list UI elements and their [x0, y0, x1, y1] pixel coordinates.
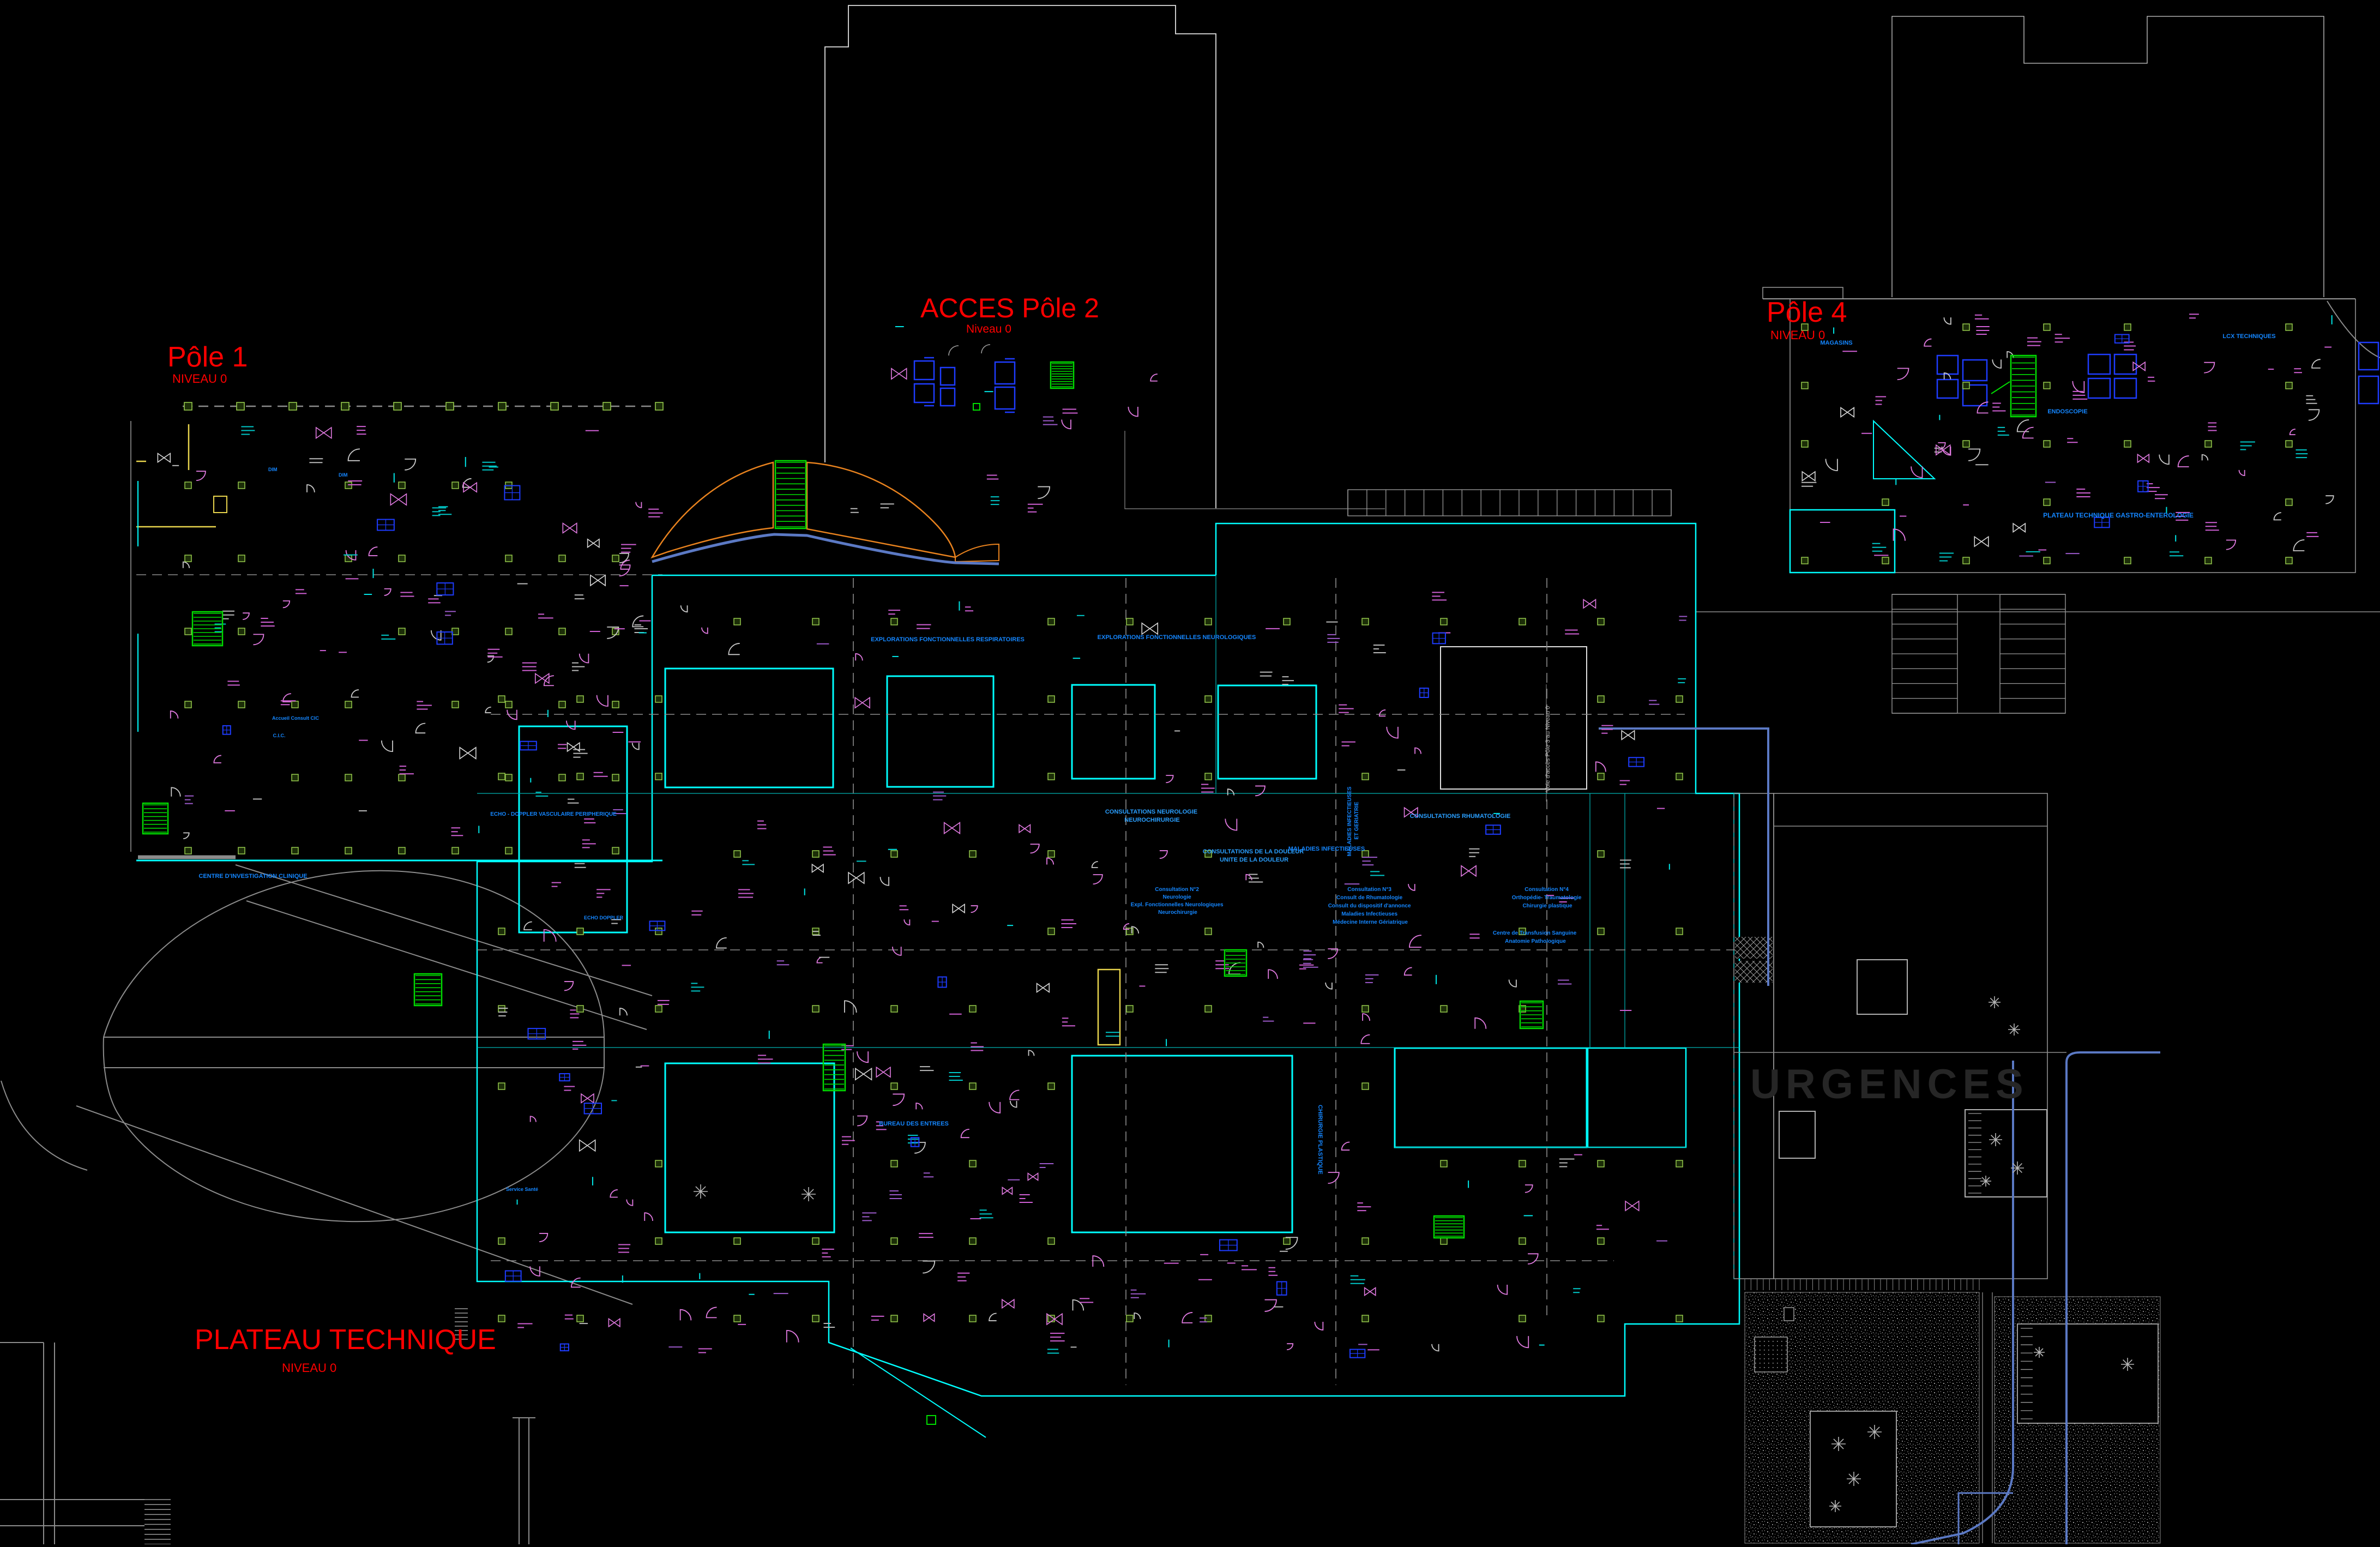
- double-door-symbol: [812, 864, 823, 872]
- annotation-mark: [1976, 327, 1989, 334]
- column-marker: [238, 628, 245, 635]
- door-arc: [1128, 407, 1137, 416]
- column-marker: [446, 402, 454, 410]
- column-marker: [2286, 324, 2292, 330]
- double-door-symbol: [1002, 1188, 1012, 1195]
- door-arc: [620, 1008, 627, 1015]
- column-marker: [1048, 618, 1055, 625]
- door-arc: [1968, 449, 1980, 461]
- column-marker: [655, 696, 662, 702]
- cad-drawing: Pôle 1 NIVEAU 0 ACCES Pôle 2 Niveau 0 Pô…: [0, 0, 2380, 1544]
- annotation-mark: [1215, 961, 1229, 968]
- annotation-mark: [924, 1173, 933, 1177]
- label-magasins: MAGASINS: [1820, 340, 1852, 346]
- annotation-mark: [919, 1233, 933, 1237]
- garden-divider-path: [1983, 1292, 1992, 1543]
- waiting-area-furniture: [914, 358, 1015, 412]
- column-marker: [1882, 499, 1889, 505]
- patio-1: [1965, 1110, 2047, 1197]
- door-arc: [855, 654, 863, 661]
- door-arc: [1264, 1300, 1276, 1311]
- door-arc: [2309, 410, 2319, 420]
- annotation-mark: [691, 911, 702, 915]
- door-arc: [1361, 1035, 1370, 1044]
- crosshatch-room-1: [1735, 937, 1773, 959]
- garden-comb: [1745, 1279, 1979, 1290]
- annotation-mark: [565, 1315, 574, 1319]
- annotation-mark: [658, 1001, 670, 1004]
- column-marker: [734, 851, 740, 857]
- door-arc: [1475, 1018, 1486, 1029]
- annotation-mark: [920, 1067, 933, 1070]
- column-marker: [2286, 557, 2292, 564]
- furniture-block-detail: [437, 583, 453, 595]
- door-arc: [971, 906, 978, 912]
- label-consultation4: Consultation N°4 Orthopédie- Traumatolog…: [1512, 887, 1583, 909]
- annotation-mark: [1370, 871, 1384, 875]
- annotation-mark: [1975, 315, 1989, 319]
- door-arc: [989, 1102, 1000, 1113]
- gardens: [1745, 1292, 2160, 1544]
- column-marker: [1963, 557, 1969, 564]
- roof-joints: [1734, 826, 2066, 1052]
- door-arc: [1246, 875, 1251, 880]
- column-marker: [498, 1006, 505, 1012]
- column-marker: [452, 701, 459, 708]
- double-door-symbol: [581, 1094, 594, 1103]
- column-marker: [577, 1315, 583, 1322]
- double-door-symbol: [1974, 537, 1989, 546]
- annotation-mark: [445, 611, 456, 615]
- annotation-mark: [1679, 617, 1687, 621]
- column-marker: [969, 1160, 976, 1167]
- label-consultation3: Consultation N°3 Consult de Rhumatologie…: [1328, 887, 1413, 925]
- annotation-mark: [517, 1324, 532, 1328]
- plateau-technique-subtitle: NIVEAU 0: [282, 1361, 336, 1375]
- column-marker: [185, 847, 191, 854]
- column-marker: [655, 402, 663, 410]
- garden-patio-2: [2017, 1324, 2158, 1423]
- column-marker: [559, 701, 565, 708]
- column-marker: [399, 847, 405, 854]
- column-marker: [1963, 382, 1969, 389]
- door-arc: [1150, 374, 1158, 381]
- annotation-mark: [1040, 1164, 1054, 1167]
- column-marker: [238, 482, 245, 489]
- annotation-mark: [296, 589, 306, 593]
- pole1-courtyard: [519, 726, 627, 932]
- annotation-mark: [980, 1210, 993, 1218]
- annotation-mark: [1620, 781, 1630, 785]
- stair-pole1-b: [143, 803, 168, 834]
- door-arc: [2239, 470, 2245, 475]
- door-arc: [567, 721, 575, 730]
- column-marker: [559, 628, 565, 635]
- ramp-west-berm: [652, 462, 773, 557]
- pole4-body: [1763, 287, 2355, 573]
- stair-leader: [1991, 382, 2010, 394]
- column-marker: [345, 847, 352, 854]
- furniture-block-detail: [1277, 1281, 1287, 1295]
- annotation-mark: [482, 462, 497, 470]
- annotation-mark: [222, 611, 234, 619]
- double-door-symbol: [1583, 599, 1595, 608]
- corridor-centerlines: [477, 578, 1739, 1385]
- door-arc: [2274, 513, 2281, 520]
- double-door-symbol: [608, 1319, 620, 1326]
- column-marker: [185, 628, 191, 635]
- annotation-mark: [757, 821, 767, 829]
- escalator-pole2-rungs: [1052, 364, 1072, 387]
- annotation-mark: [1263, 1018, 1274, 1021]
- column-marker: [1598, 696, 1604, 702]
- column-marker: [1205, 1006, 1212, 1012]
- annotation-mark: [2072, 392, 2087, 399]
- door-arc: [564, 982, 573, 990]
- door-arc: [1409, 935, 1421, 947]
- parking-band-north: [1348, 490, 1671, 516]
- door-arc: [893, 947, 901, 955]
- door-arc: [2325, 496, 2333, 503]
- skylight-2: [1779, 1111, 1815, 1158]
- column-marker: [891, 1160, 897, 1167]
- door-arc: [857, 1051, 868, 1062]
- door-arc: [1528, 1254, 1538, 1264]
- plant-symbol: [1831, 1437, 1846, 1451]
- annotation-mark: [965, 607, 973, 611]
- column-marker: [1598, 1160, 1604, 1167]
- door-arc: [171, 711, 178, 719]
- road-through-pond: [104, 1037, 604, 1068]
- column-marker: [1598, 773, 1604, 780]
- annotation-mark: [2027, 338, 2041, 346]
- door-arc: [1062, 420, 1071, 429]
- plant-symbol: [2008, 1024, 2020, 1036]
- annotation-mark: [822, 1249, 834, 1257]
- double-door-symbol: [1802, 472, 1815, 481]
- column-marker: [734, 1238, 740, 1244]
- column-marker: [969, 1006, 976, 1012]
- door-arc: [1498, 1285, 1508, 1295]
- label-service-sante: Service Santé: [506, 1187, 538, 1192]
- door-arc: [1325, 983, 1332, 989]
- annotation-mark: [1242, 1266, 1257, 1269]
- urgences-roof: [1774, 793, 2047, 1279]
- column-marker: [238, 555, 245, 562]
- double-door-symbol: [924, 1314, 935, 1322]
- label-bureau-entrees: BUREAU DES ENTREES: [879, 1121, 949, 1127]
- column-marker: [498, 928, 505, 935]
- annotation-mark: [575, 595, 585, 599]
- door-arc: [893, 1094, 904, 1105]
- column-marker: [1963, 441, 1969, 447]
- annotation-mark: [568, 799, 579, 803]
- annotation-mark: [1801, 483, 1816, 486]
- plant-symbol: [1989, 996, 2001, 1008]
- annotation-mark: [584, 819, 595, 823]
- column-marker: [1048, 928, 1055, 935]
- column-marker: [1048, 1238, 1055, 1244]
- column-marker: [505, 628, 512, 635]
- column-marker: [577, 1006, 583, 1012]
- door-arc: [2072, 381, 2084, 393]
- column-marker: [577, 928, 583, 935]
- door-arc: [1092, 862, 1098, 868]
- column-marker: [1598, 1238, 1604, 1244]
- label-cic-short: C.I.C.: [273, 733, 285, 738]
- door-arc: [1225, 819, 1237, 830]
- column-marker: [812, 1238, 819, 1244]
- column-marker: [1126, 618, 1133, 625]
- door-arc: [183, 833, 189, 839]
- annotation-mark: [2155, 495, 2168, 498]
- annotation-mark: [1469, 849, 1479, 857]
- plant-symbol: [2034, 1347, 2045, 1358]
- furniture-block-detail: [585, 1103, 601, 1113]
- column-marker: [1676, 773, 1683, 780]
- courtyard-5: [665, 1063, 834, 1232]
- annotation-mark: [691, 983, 704, 991]
- door-arc: [681, 605, 688, 612]
- door-arc: [787, 1331, 799, 1343]
- column-marker: [655, 928, 662, 935]
- door-arc: [405, 459, 415, 470]
- column-marker: [891, 1083, 897, 1089]
- door-arc: [610, 1190, 618, 1197]
- column-marker: [2124, 441, 2131, 447]
- annotation-mark: [1201, 785, 1215, 792]
- label-dim-2: DIM: [339, 472, 348, 478]
- column-marker: [2044, 441, 2050, 447]
- annotation-mark: [1249, 875, 1263, 882]
- column-marker: [498, 1083, 505, 1089]
- annotation-mark: [1649, 701, 1659, 705]
- pole4-subtitle: NIVEAU 0: [1770, 328, 1825, 342]
- furniture-block-detail: [1629, 757, 1644, 766]
- annotation-mark: [777, 961, 790, 965]
- annotation-mark: [1131, 1290, 1146, 1298]
- stair-pole1-b-rungs: [144, 805, 167, 832]
- door-arc: [544, 930, 556, 942]
- annotation-mark: [1558, 980, 1571, 984]
- door-arc: [644, 1213, 653, 1221]
- south-appendage: [851, 1348, 986, 1437]
- column-marker: [603, 402, 611, 410]
- door-arc: [1992, 359, 2001, 368]
- annotation-mark: [2076, 489, 2090, 497]
- annotation-mark: [2240, 442, 2255, 450]
- urgences-roof-title: URGENCES: [1750, 1061, 2029, 1107]
- annotation-mark: [851, 509, 859, 513]
- stair-main-c-rungs: [1226, 952, 1245, 974]
- column-marker: [238, 701, 245, 708]
- door-arc: [531, 1116, 536, 1122]
- door-arc: [1010, 1090, 1019, 1099]
- column-marker: [891, 618, 897, 625]
- column-marker: [184, 402, 192, 410]
- annotation-mark: [758, 1055, 773, 1063]
- column-marker: [1801, 382, 1808, 389]
- door-arc: [1924, 339, 1931, 346]
- column-marker: [292, 774, 298, 781]
- annotation-mark: [522, 663, 537, 671]
- annotation-mark: [987, 475, 998, 479]
- stair-pole4-rungs: [2012, 357, 2035, 415]
- column-marker: [1205, 928, 1212, 935]
- door-arc: [1408, 884, 1415, 890]
- column-marker: [1205, 773, 1212, 780]
- annotation-mark: [1155, 965, 1168, 972]
- column-marker: [2286, 499, 2292, 505]
- label-accueil-cic: Accueil Consult CIC: [272, 715, 320, 721]
- double-door-symbol: [158, 454, 170, 462]
- door-arc: [2226, 540, 2236, 549]
- door-arc: [707, 1307, 717, 1317]
- pole1-subtitle: NIVEAU 0: [172, 372, 227, 386]
- column-marker: [551, 402, 558, 410]
- double-door-symbol: [876, 1067, 890, 1077]
- annotation-mark: [1432, 592, 1447, 600]
- column-marker: [1963, 324, 1969, 330]
- column-marker: [2044, 557, 2050, 564]
- double-door-symbol: [1002, 1299, 1014, 1308]
- annotation-mark: [573, 1042, 586, 1049]
- label-consultation2: Consultation N°2 Neurologie Expl. Foncti…: [1131, 887, 1225, 916]
- annotation-mark: [2206, 522, 2219, 530]
- annotation-mark: [558, 744, 567, 748]
- annotation-mark: [1303, 960, 1318, 967]
- label-echo-doppler-vasculaire: ECHO - DOPPLER VASCULAIRE PERIPHERIQUE: [490, 811, 617, 817]
- furniture-block-detail: [505, 1271, 521, 1281]
- column-marker: [612, 774, 619, 781]
- door-arc: [1029, 1050, 1034, 1056]
- annotation-mark: [1939, 553, 1954, 561]
- furniture-block-detail: [377, 520, 394, 531]
- annotation-mark: [1020, 1195, 1033, 1202]
- column-marker: [812, 851, 819, 857]
- column-marker: [734, 618, 740, 625]
- annotation-mark: [309, 459, 323, 462]
- annotation-mark: [1061, 920, 1076, 928]
- column-marker: [1676, 696, 1683, 702]
- door-arc: [817, 957, 822, 962]
- furniture-block-detail: [938, 977, 946, 988]
- label-rhumatologie: CONSULTATIONS RHUMATOLOGIE: [1410, 813, 1511, 820]
- pole2-outline: [825, 5, 1216, 508]
- column-marker: [1284, 1238, 1290, 1244]
- door-arc: [1093, 1256, 1104, 1267]
- plant-symbol: [2011, 1161, 2024, 1175]
- label-lcx-techniques: LCX TECHNIQUES: [2222, 333, 2275, 340]
- column-marker: [612, 701, 619, 708]
- annotation-mark: [1678, 679, 1686, 683]
- annotation-mark: [573, 750, 587, 757]
- door-arc: [539, 1233, 547, 1242]
- annotation-mark: [1062, 1018, 1075, 1026]
- courtyard-4: [1218, 685, 1316, 779]
- door-arc: [1911, 466, 1922, 477]
- door-arc: [1010, 1101, 1017, 1107]
- double-door-symbol: [855, 1068, 872, 1080]
- double-door-symbol: [316, 428, 332, 438]
- column-marker: [394, 402, 401, 410]
- door-arc: [1228, 789, 1234, 795]
- column-marker: [969, 1315, 976, 1322]
- annotation-mark: [2170, 552, 2183, 556]
- furniture-block-detail: [437, 632, 452, 644]
- door-arc: [1509, 979, 1516, 986]
- column-marker: [498, 773, 505, 780]
- annotation-mark: [538, 614, 553, 618]
- floor-plan-canvas[interactable]: Pôle 1 NIVEAU 0 ACCES Pôle 2 Niveau 0 Pô…: [0, 0, 2380, 1547]
- column-marker: [891, 851, 897, 857]
- column-marker: [1048, 773, 1055, 780]
- column-marker: [505, 774, 512, 781]
- column-marker: [2286, 382, 2292, 389]
- column-marker: [1676, 928, 1683, 935]
- pole4-building: [1763, 16, 2378, 573]
- label-transfusion: Centre de Transfusion Sanguine Anatomie …: [1493, 930, 1578, 944]
- door-arc: [914, 1142, 925, 1153]
- column-marker: [345, 774, 352, 781]
- service-shaft: [1098, 970, 1120, 1045]
- double-door-symbol: [588, 539, 599, 547]
- annotation-mark: [241, 427, 255, 435]
- column-marker: [2044, 324, 2050, 330]
- column-marker: [292, 701, 298, 708]
- annotation-mark: [417, 701, 432, 709]
- annotation-mark: [451, 828, 463, 835]
- stair-main-s-rungs: [1435, 1218, 1463, 1236]
- annotation-mark: [1106, 1032, 1119, 1036]
- annotation-mark: [618, 1244, 630, 1252]
- annotation-mark: [991, 497, 1000, 504]
- main-outline: [477, 523, 1739, 1396]
- column-marker: [1048, 1083, 1055, 1089]
- door-arc: [1160, 851, 1167, 858]
- annotation-mark: [400, 593, 414, 597]
- plant-symbol: [694, 1184, 708, 1199]
- double-door-symbol: [1142, 623, 1158, 634]
- annotation-mark: [535, 792, 548, 796]
- annotation-mark: [1339, 705, 1353, 713]
- column-marker: [577, 773, 583, 780]
- pond-roundabout: [104, 871, 604, 1221]
- label-chirurgie-plastique-vertical: CHIRURGIE PLASTIQUE: [1317, 1105, 1323, 1175]
- annotation-mark: [564, 1087, 575, 1091]
- annotation-mark: [1303, 951, 1316, 959]
- annotation-mark: [1365, 975, 1379, 983]
- stair-main-e-rungs: [1521, 1003, 1542, 1027]
- door-arc: [1315, 1322, 1323, 1330]
- annotation-mark: [227, 681, 239, 685]
- annotation-mark: [1601, 726, 1613, 733]
- column-marker: [559, 774, 565, 781]
- door-arc: [283, 601, 290, 607]
- furniture-block-detail: [650, 921, 665, 930]
- column-marker: [1048, 696, 1055, 702]
- annotation-mark: [621, 545, 636, 552]
- double-door-symbol: [1461, 866, 1476, 876]
- entrance-door-arcs: [949, 345, 990, 356]
- double-door-symbol: [390, 494, 406, 505]
- double-door-symbol: [855, 697, 870, 708]
- annotation-mark: [261, 618, 274, 626]
- pole1-building: [131, 406, 662, 932]
- door-arc: [2159, 455, 2169, 465]
- east-roofs: [1734, 594, 2066, 1279]
- double-door-symbol: [580, 1140, 595, 1151]
